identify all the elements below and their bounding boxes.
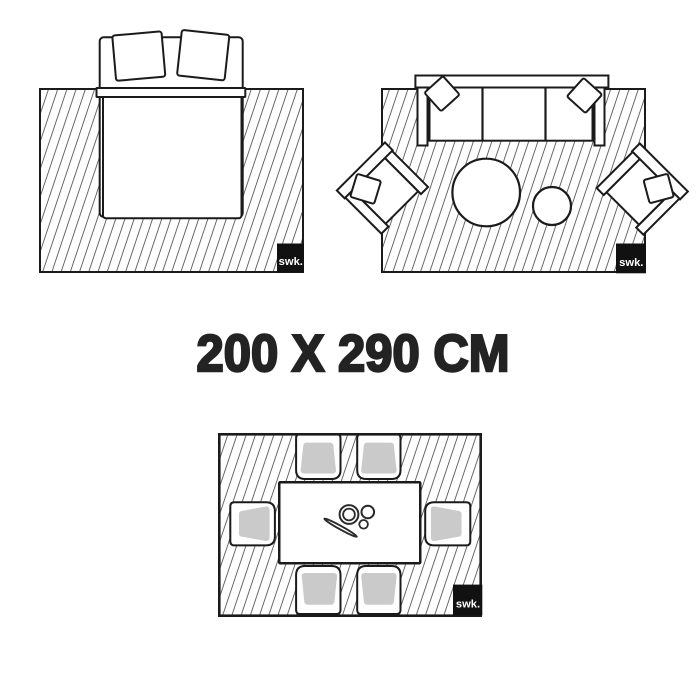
svg-text:swk.: swk. xyxy=(619,257,643,269)
svg-text:swk.: swk. xyxy=(456,598,480,610)
svg-text:swk.: swk. xyxy=(279,256,303,268)
svg-text:200 X 290 CM: 200 X 290 CM xyxy=(197,325,510,383)
